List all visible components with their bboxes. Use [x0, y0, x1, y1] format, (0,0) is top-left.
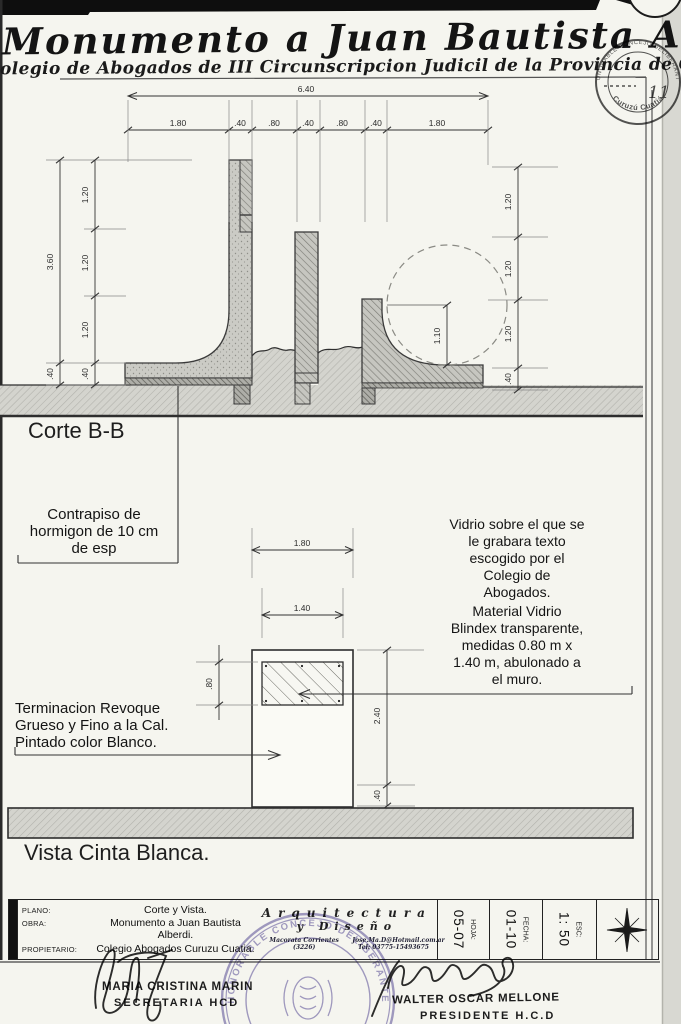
corte-bb-label: Corte B-B: [28, 418, 125, 444]
dim-label: .80: [268, 118, 280, 128]
dim-label: 1.80: [294, 538, 311, 548]
president-signature: [372, 958, 513, 1016]
dim-label: .40: [503, 373, 513, 385]
cell-hoja: HOJA: 05-07: [437, 900, 489, 959]
field-value: Corte y Vista.: [94, 904, 257, 916]
dim-label: 6.40: [298, 84, 315, 94]
dim-label: 1.20: [503, 260, 513, 277]
council-stamp-emblem: [284, 977, 332, 1019]
cell-value: 01-10: [504, 910, 519, 950]
field-obra: OBRA: Monumento a Juan Bautista Alberdi.: [22, 917, 257, 941]
president-name: WALTER OSCAR MELLONE: [392, 992, 560, 1007]
scanned-plan-sheet: 6.40 1.80 .40 .80 .40 .80 .40 1.80 3.60 …: [0, 0, 681, 1024]
firm-name-line2: y Diseño: [257, 920, 437, 933]
firm-contact-left: Macorata Corrientes (3226): [263, 937, 345, 951]
cell-label: ESC:: [575, 921, 582, 937]
title-block-edge-strip: [9, 900, 18, 959]
cell-value: 05-07: [451, 910, 466, 950]
title-block: PLANO: Corte y Vista. OBRA: Monumento a …: [8, 899, 659, 960]
field-label: PLANO:: [22, 906, 94, 915]
stamp-place-text: Curuzú Cuatiá: [611, 94, 665, 113]
cell-escala: ESC: 1: 50: [542, 900, 595, 959]
field-plano: PLANO: Corte y Vista.: [22, 904, 257, 916]
dim-label: 3.60: [45, 253, 55, 270]
cell-fecha: FECHA: 01-10: [489, 900, 542, 959]
stamp-handwritten-number: 11: [648, 83, 670, 103]
sheet-subtitle: olegio de Abogados de III Circunscripcio…: [0, 55, 660, 80]
field-value: Monumento a Juan Bautista Alberdi.: [94, 917, 257, 941]
contrapiso-annotation: Contrapiso de hormigon de 10 cm de esp: [18, 506, 170, 557]
vista-label: Vista Cinta Blanca.: [24, 840, 209, 866]
dim-label: .40: [234, 118, 246, 128]
dim-label: .40: [45, 368, 55, 380]
dim-label: 1.40: [294, 603, 311, 613]
dim-label: .80: [204, 678, 214, 690]
dim-label: 1.10: [432, 327, 442, 344]
secretary-role: SECRETARIA HCD: [114, 997, 239, 1009]
dim-label: 2.40: [372, 707, 382, 724]
corte-bb-drawing: [0, 93, 643, 564]
firm-block: Arquitectura y Diseño Macorata Corriente…: [257, 900, 437, 959]
field-propietario: PROPIETARIO: Colegio Abogados Curuzu Cua…: [22, 943, 257, 955]
firm-name-line1: Arquitectura: [257, 906, 437, 920]
dim-label: .40: [372, 790, 382, 802]
dim-label: .40: [302, 118, 314, 128]
dim-label: 1.20: [80, 186, 90, 203]
dim-label: 1.20: [503, 193, 513, 210]
dim-label: .40: [370, 118, 382, 128]
svg-text:Curuzú Cuatiá: Curuzú Cuatiá: [611, 94, 665, 113]
title-block-fields: PLANO: Corte y Vista. OBRA: Monumento a …: [18, 900, 257, 959]
dim-label: 1.20: [80, 321, 90, 338]
firm-contact-right: Jose.Ma.D@Hotmail.com.ar Tel: 03775-1549…: [352, 937, 434, 951]
dim-label: 1.20: [503, 325, 513, 342]
terminacion-annotation: Terminacion Revoque Grueso y Fino a la C…: [15, 700, 197, 751]
compass-cell: [596, 900, 658, 959]
field-value: Colegio Abogados Curuzu Cuatia.: [94, 943, 257, 955]
cell-label: FECHA:: [522, 917, 529, 943]
cell-value: 1: 50: [557, 912, 572, 947]
dim-label: 1.80: [170, 118, 187, 128]
compass-rose-icon: [605, 905, 649, 955]
dim-label: 1.20: [80, 254, 90, 271]
cell-label: HOJA:: [469, 919, 476, 940]
president-role: PRESIDENTE H.C.D: [420, 1010, 555, 1022]
field-label: PROPIETARIO:: [22, 945, 94, 954]
secretary-name: MARIA CRISTINA MARIN: [102, 981, 253, 993]
field-label: OBRA:: [22, 919, 94, 928]
dim-label: 1.80: [429, 118, 446, 128]
dim-label: .80: [336, 118, 348, 128]
dim-label: .40: [80, 368, 90, 380]
vidrio-annotation: Vidrio sobre el que se le grabara texto …: [436, 516, 598, 688]
